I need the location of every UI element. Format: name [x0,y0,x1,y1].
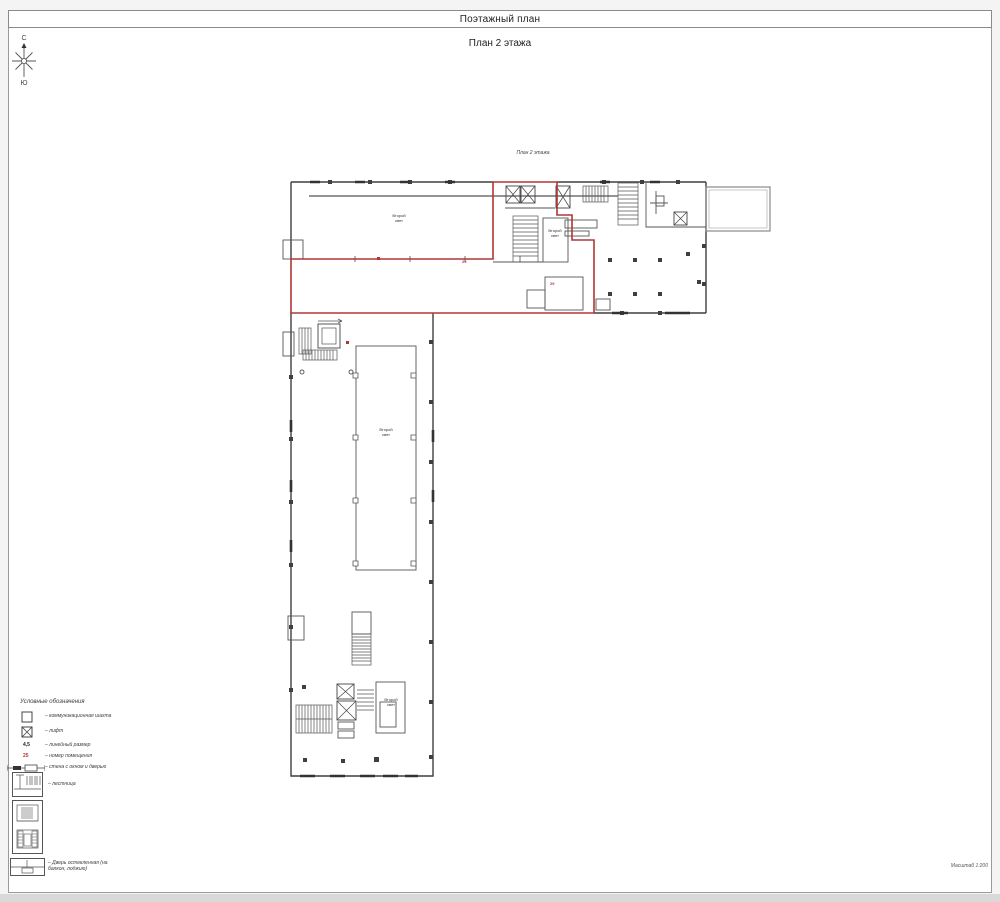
stairs-section-icon [12,800,43,854]
legend-label-elevator: – лифт [45,728,63,734]
room-label-upper-hall: Второй свет [390,214,408,223]
atrium-column-markers [353,373,416,566]
equipment-symbol [656,196,664,206]
room-number-mark: 29 [462,259,466,264]
interior-walls [283,183,706,738]
room-number-mark: 29 [550,281,554,286]
room-label-stair-room: Второй свет [547,229,563,238]
escalator-cluster [299,319,342,360]
column-markers [289,180,706,763]
annex-terrace [706,187,770,231]
elevator-icon [21,726,33,738]
scale-label: Масштаб 1:200 [920,863,988,869]
legend-label-stairs: – лестница [48,781,76,787]
atrium-void [356,346,416,570]
communication-shaft-icon [21,711,33,723]
legend-label-shaft: – коммуникационная шахта [45,713,111,719]
floor-plan-drawing [0,0,1000,902]
selected-premise-outline [291,182,594,344]
legend-label-room-number: – номер помещения [45,753,92,759]
room-label-atrium: Второй свет [377,428,395,437]
legend-label-wall-window-door: – стена с окном и дверью [45,764,106,770]
legend-title: Условные обозначения [20,699,85,705]
linear-dimension-sample: 4,5 [23,742,30,748]
exterior-walls [291,182,706,776]
glazed-door-icon [10,858,45,876]
stairs-icon [12,772,43,797]
room-number-sample: 25 [23,753,29,759]
stair-icons [296,183,638,733]
plan-caption: План 2 этажа [498,150,568,156]
legend-label-linear-dimension: – линейный размер [45,742,90,748]
room-label-lower-room: Второй свет [382,698,400,707]
elevator-shaft-icons [337,186,687,720]
legend-label-glazed-door: – Дверь остекленная (на балкон, лоджию) [48,860,120,873]
